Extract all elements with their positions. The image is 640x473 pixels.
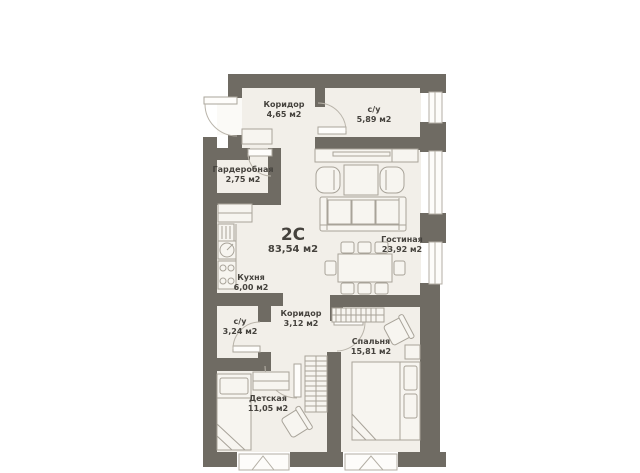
wall-bottom-right	[398, 452, 446, 467]
sofa	[320, 197, 406, 231]
wall-wardrobe-bottom	[203, 193, 281, 205]
nightstand	[405, 345, 420, 359]
room-area: 3,24 м2	[223, 327, 258, 336]
room-area: 15,81 м2	[351, 347, 391, 356]
window-kids	[239, 454, 289, 470]
room-area: 4,65 м2	[267, 110, 302, 119]
wall-right-pier-1	[420, 122, 446, 152]
kids-room-door-leaf	[294, 364, 301, 397]
bed-pillow	[404, 366, 417, 390]
coffee-table	[344, 165, 378, 195]
dining-chair	[375, 283, 388, 294]
room-area: 6,00 м2	[234, 283, 269, 292]
wall-right-pier-2	[420, 213, 446, 243]
wall-bath2-right-upper	[258, 306, 271, 322]
dining-chair	[341, 242, 354, 253]
kids-bed-pillow	[220, 378, 248, 394]
wall-bath1-left	[315, 88, 325, 107]
wall-bedroom-top	[330, 295, 420, 307]
wall-top	[228, 74, 434, 88]
living-room-furniture	[315, 149, 418, 294]
wall-bath2-bottom	[203, 358, 271, 371]
bed-pillow	[404, 394, 417, 418]
floor-plan: Коридор 4,65 м2 с/у 5,89 м2 Гардеробная …	[0, 0, 640, 473]
dining-chair	[325, 261, 336, 275]
wall-wardrobe-top-left	[203, 148, 250, 160]
wall-right-lower	[420, 283, 440, 452]
dining-chair	[358, 283, 371, 294]
entrance-door-leaf	[204, 97, 237, 104]
wall-top-right-corner	[420, 74, 446, 93]
room-area: 5,89 м2	[357, 115, 392, 124]
wardrobe-door-leaf	[248, 149, 272, 156]
room-name: Коридор	[280, 309, 321, 318]
room-name: Гардеробная	[213, 164, 274, 174]
room-area: 3,12 м2	[284, 319, 319, 328]
room-label-hallway-top: Коридор 4,65 м2	[263, 100, 304, 119]
room-label-hallway-small: Коридор 3,12 м2	[280, 309, 321, 328]
armchair-right	[380, 167, 404, 193]
room-name: Спальня	[352, 337, 390, 346]
dining-table	[338, 254, 392, 282]
wall-kids-bedroom-divider	[327, 352, 341, 452]
dining-chair	[358, 242, 371, 253]
room-name: Коридор	[263, 100, 304, 109]
hallway-cabinet	[242, 129, 272, 144]
room-label-kids: Детская 11,05 м2	[248, 394, 288, 413]
plan-type-label: 2С	[281, 225, 305, 245]
room-name: Гостиная	[381, 235, 423, 244]
room-area: 2,75 м2	[226, 175, 261, 184]
room-name: Детская	[249, 394, 287, 403]
room-area: 23,92 м2	[382, 245, 422, 254]
wall-bottom-center	[290, 452, 343, 467]
room-area: 11,05 м2	[248, 404, 288, 413]
dining-chair	[394, 261, 405, 275]
room-name: с/у	[368, 105, 382, 114]
floor-plan-canvas: Коридор 4,65 м2 с/у 5,89 м2 Гардеробная …	[0, 0, 640, 473]
plan-total-area: 83,54 м2	[268, 244, 318, 255]
bathroom-small-door-leaf	[233, 346, 260, 352]
dining-chair	[341, 283, 354, 294]
room-name: с/у	[234, 317, 248, 326]
room-label-bedroom: Спальня 15,81 м2	[351, 337, 391, 356]
room-label-living: Гостиная 23,92 м2	[381, 235, 423, 254]
wall-kitchen-bottom	[203, 293, 283, 306]
bathroom-top-door-leaf	[318, 127, 346, 134]
room-label-kitchen: Кухня 6,00 м2	[234, 273, 269, 292]
armchair-left	[316, 167, 340, 193]
room-name: Кухня	[237, 273, 265, 282]
wall-bath1-bottom	[315, 137, 421, 150]
